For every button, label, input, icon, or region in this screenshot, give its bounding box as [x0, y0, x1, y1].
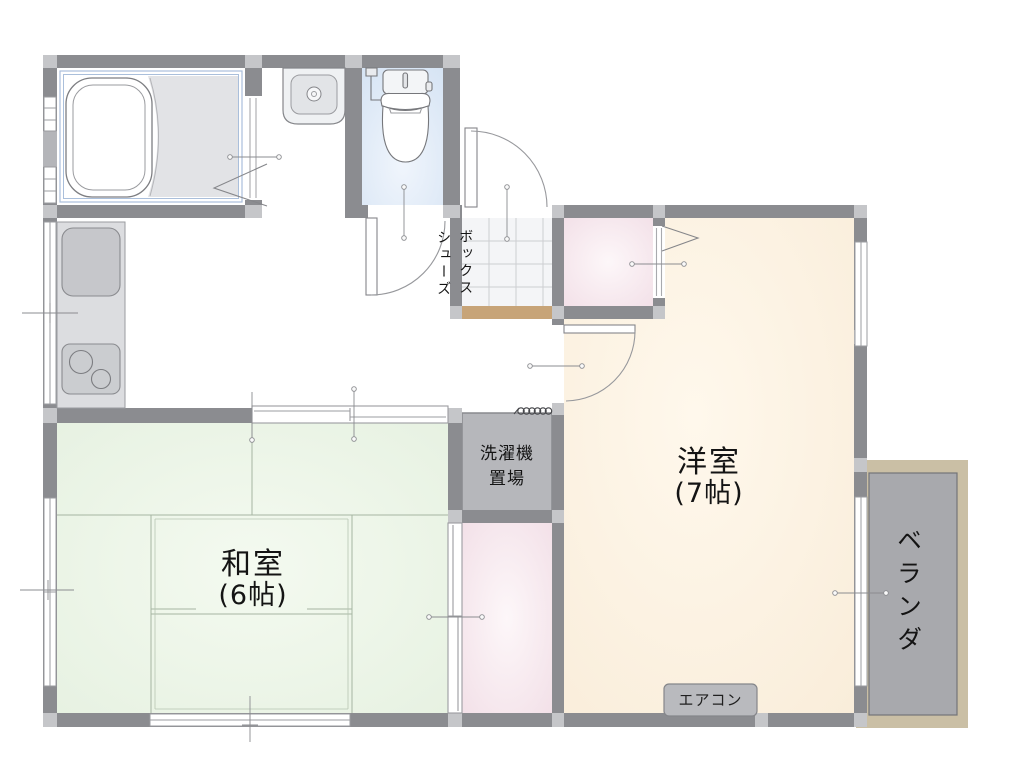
washitsu-window-left [44, 498, 56, 686]
bathroom-drain-floor [148, 76, 238, 197]
washitsu-size: (6帖) [180, 581, 326, 610]
washbasin-icon [283, 68, 345, 124]
floor-plan-drawing [0, 0, 1024, 771]
bathroom-window-lower [44, 167, 56, 203]
youshitsu-size: (7帖) [636, 479, 782, 508]
balcony-sliding-window [855, 497, 867, 686]
kitchen-counter [57, 222, 125, 408]
closet-bottom-floor [462, 523, 552, 713]
washitsu-sliding-door-east [448, 523, 462, 713]
washitsu-sliding-door-north [252, 406, 448, 423]
laundry-label: 洗濯機 置場 [462, 442, 552, 491]
washitsu-name: 和室 [180, 549, 326, 581]
laundry-line2: 置場 [462, 467, 552, 492]
floor-plan: 和室 (6帖) 洋室 (7帖) 洗濯機 置場 エアコン ベランダ シューズ ボッ… [0, 0, 1024, 771]
veranda-label: ベランダ [888, 518, 928, 668]
bathroom-window-upper [44, 97, 56, 131]
bathtub-icon [66, 78, 152, 197]
shoebox-label-right-column: ボックス [456, 223, 473, 303]
youshitsu-label: 洋室 (7帖) [636, 447, 782, 509]
genkan-step [462, 306, 552, 319]
closet-top-floor [564, 218, 653, 306]
laundry-line1: 洗濯機 [462, 442, 552, 467]
shoebox-label-left-column: シューズ [434, 225, 451, 303]
aircon-label: エアコン [664, 684, 757, 716]
youshitsu-name: 洋室 [636, 447, 782, 479]
washitsu-label: 和室 (6帖) [180, 549, 326, 611]
stove-icon [62, 344, 120, 394]
room-floors [57, 68, 968, 728]
youshitsu-window-right [855, 242, 867, 346]
kitchen-sink-icon [62, 228, 120, 296]
